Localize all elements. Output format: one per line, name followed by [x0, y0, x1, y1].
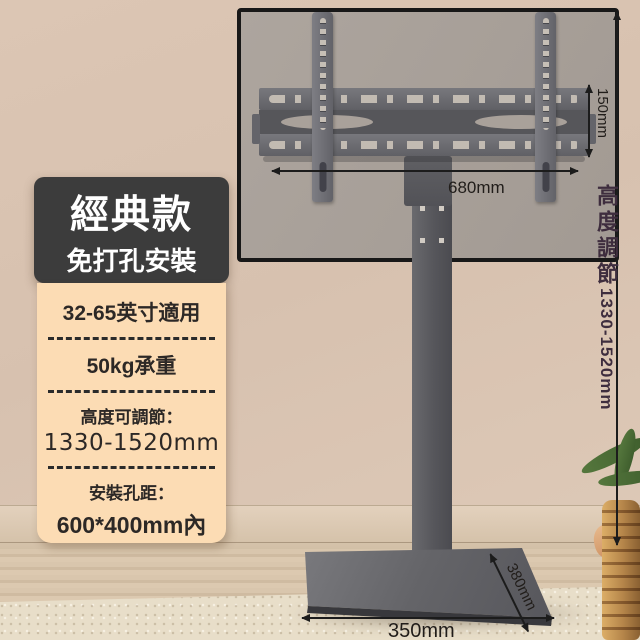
height-adjust-annotation: 高度調節1330-1520mm [590, 184, 622, 484]
classic-badge: 經典款 免打孔安裝 [34, 177, 229, 283]
dimension-line-680 [272, 170, 578, 172]
dimension-label-150: 150mm [594, 88, 611, 138]
height-adjust-value: 1330-1520mm [597, 288, 616, 411]
dimension-line-350 [302, 617, 554, 619]
dashed-divider [48, 390, 215, 393]
mount-plate [404, 156, 452, 206]
carved-wood-stand [602, 500, 640, 640]
spec-size-range: 32-65英寸適用 [37, 297, 226, 327]
dashed-divider [48, 337, 215, 340]
dimension-line-150 [588, 85, 590, 157]
spec-load-capacity: 50kg承重 [37, 350, 226, 380]
height-adjust-label: 高度調節 [594, 184, 619, 288]
product-scene: 680mm 150mm 高度調節1330-1520mm 380mm 350mm … [0, 0, 640, 640]
spec-height-value: 1330-1520mm [37, 430, 226, 456]
stand-pole [412, 158, 452, 554]
dimension-label-350: 350mm [388, 620, 455, 640]
spec-holes-label: 安裝孔距： [37, 479, 226, 504]
badge-subtitle: 免打孔安裝 [34, 241, 229, 278]
dimension-label-680: 680mm [448, 178, 505, 198]
spec-holes-value: 600*400mm內 [37, 506, 226, 540]
dashed-divider [48, 466, 215, 469]
spec-box: 32-65英寸適用 50kg承重 高度可調節： 1330-1520mm 安裝孔距… [37, 283, 226, 543]
badge-title: 經典款 [34, 184, 229, 240]
vesa-arm-left [312, 12, 333, 202]
crossbar-left-tab [252, 114, 260, 144]
vesa-arm-right [535, 12, 556, 202]
spec-height-label: 高度可調節： [37, 403, 226, 428]
